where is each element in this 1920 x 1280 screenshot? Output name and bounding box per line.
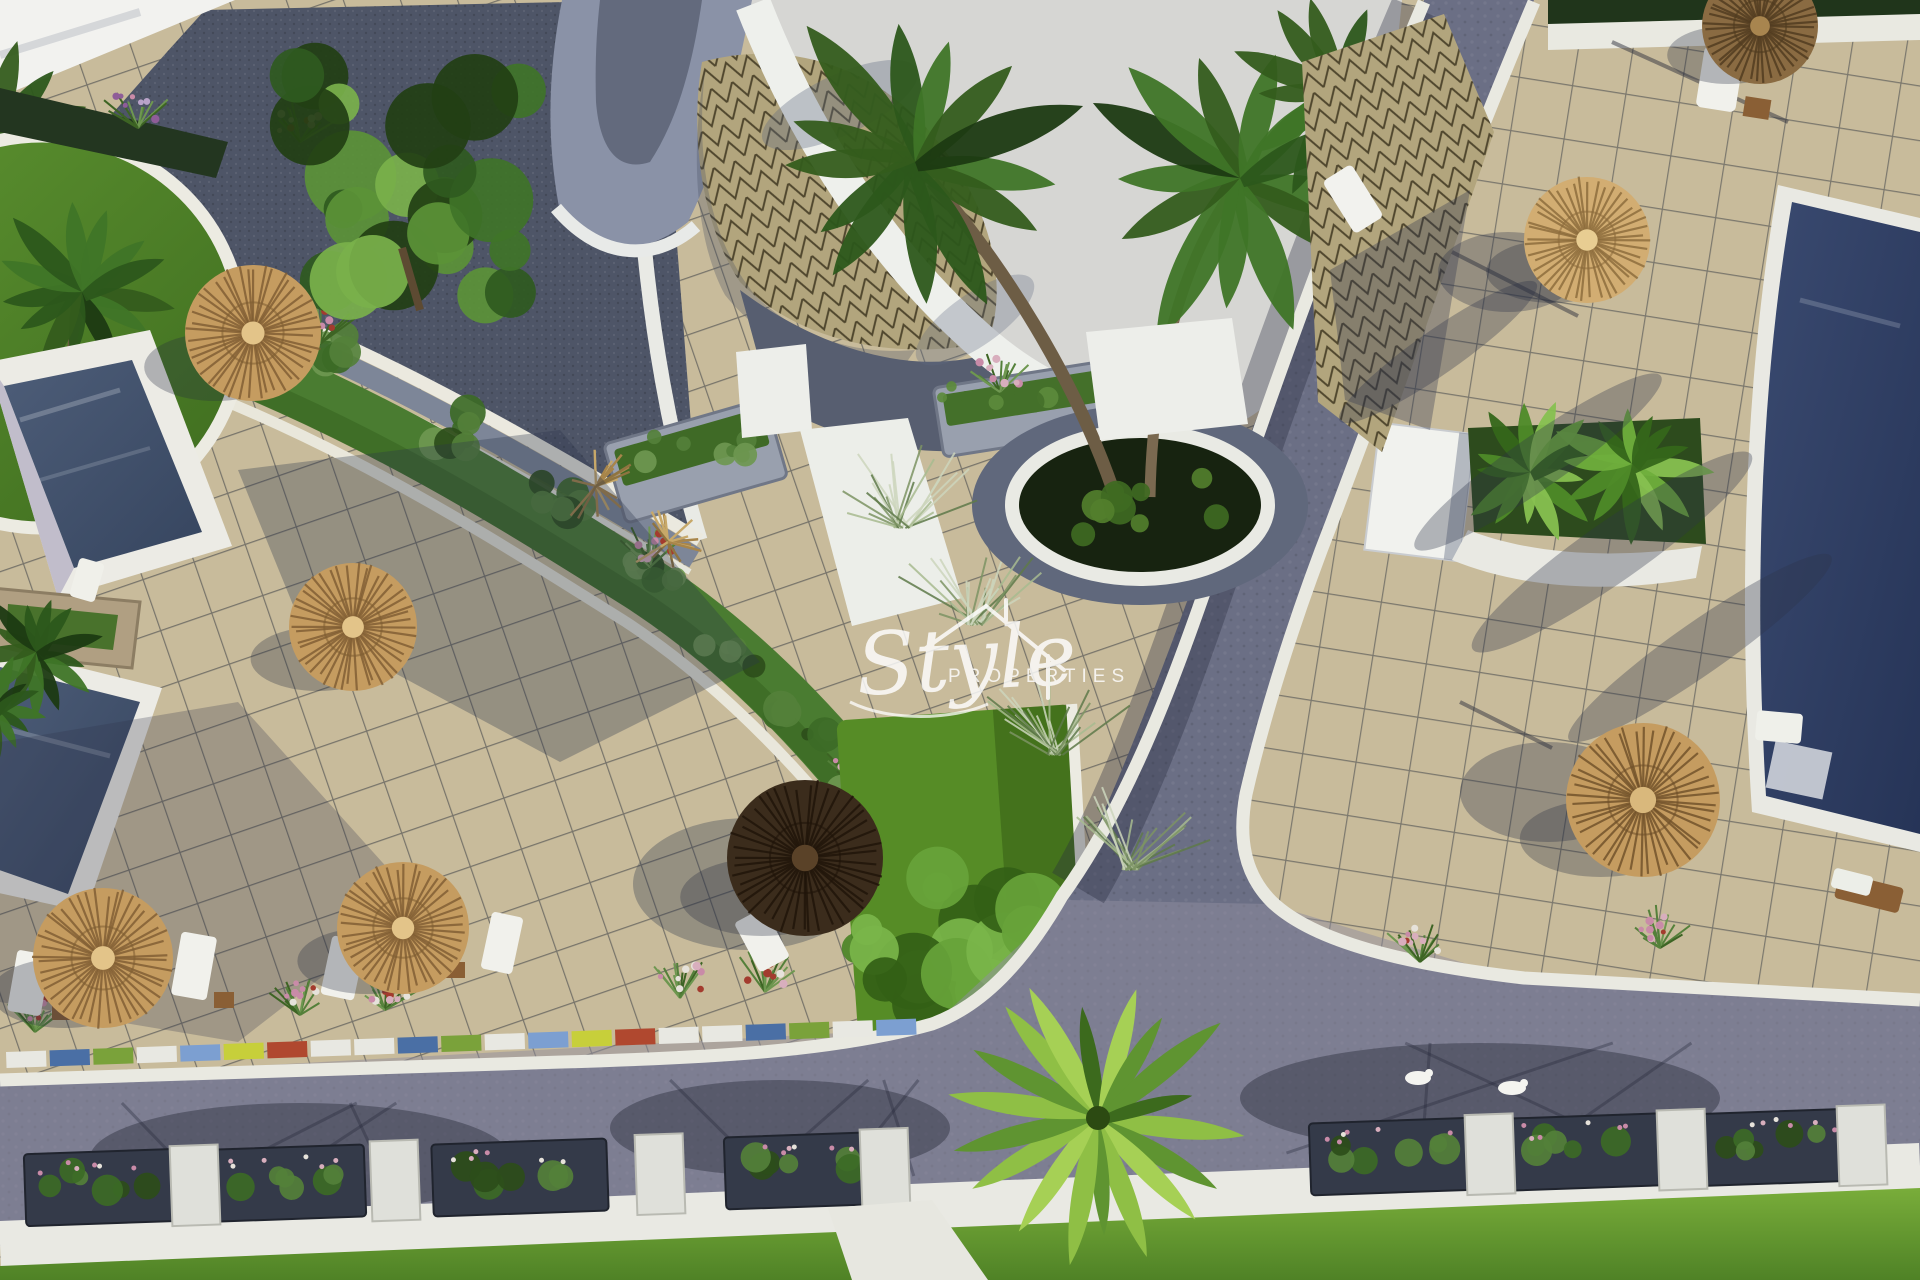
planter-divider [1657, 1109, 1708, 1191]
mosaic-tile [137, 1046, 178, 1063]
mosaic-tile [702, 1025, 743, 1042]
mosaic-tile [93, 1047, 134, 1064]
bench [1755, 710, 1803, 744]
mosaic-tile [180, 1044, 221, 1061]
mosaic-tile [789, 1022, 830, 1039]
mosaic-tile [485, 1033, 526, 1050]
white-crosswalk [1086, 318, 1248, 440]
watermark-caps-text: PROPERTIES [948, 666, 1130, 687]
mosaic-tile [6, 1051, 47, 1068]
side-table [1743, 96, 1772, 120]
planter-box [1694, 1109, 1856, 1187]
mosaic-tile [224, 1043, 265, 1060]
mosaic-tile [311, 1039, 352, 1056]
mosaic-tile [398, 1036, 439, 1053]
planter-divider [1465, 1113, 1516, 1195]
planter-divider [370, 1140, 421, 1222]
mosaic-tile [354, 1038, 395, 1055]
planter-box [24, 1149, 176, 1226]
mosaic-tile [876, 1019, 917, 1036]
mosaic-tile [50, 1049, 91, 1066]
scene-canvas: Style PROPERTIES [0, 0, 1920, 1280]
planter-divider [860, 1128, 911, 1210]
planter-box [1309, 1118, 1471, 1196]
mosaic-tile [528, 1031, 569, 1048]
white-walkway-small [736, 344, 812, 438]
planter-box [431, 1138, 608, 1216]
planter-divider [635, 1133, 686, 1215]
mosaic-tile [833, 1020, 874, 1037]
mosaic-tile [267, 1041, 308, 1058]
mosaic-tile [441, 1035, 482, 1052]
mosaic-tile [572, 1030, 613, 1047]
mosaic-tile [746, 1023, 787, 1040]
planter-divider [170, 1145, 221, 1227]
pool-right [1745, 185, 1920, 852]
mosaic-tile [615, 1028, 656, 1045]
side-table [214, 992, 234, 1008]
planter-box [1504, 1113, 1666, 1191]
resort-aerial-render: Style PROPERTIES [0, 0, 1920, 1280]
mosaic-tile [659, 1027, 700, 1044]
planter-box [214, 1144, 366, 1221]
planter-divider [1837, 1104, 1888, 1186]
